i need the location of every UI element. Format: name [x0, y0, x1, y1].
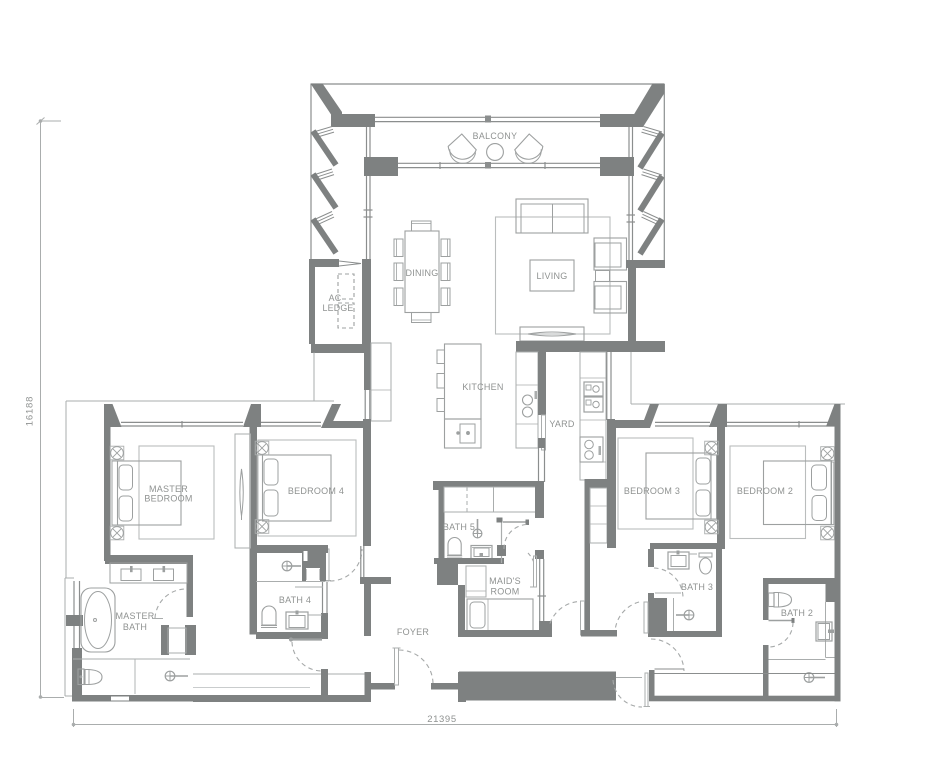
svg-text:MASTER: MASTER	[149, 484, 188, 494]
svg-text:LEDGE: LEDGE	[322, 303, 353, 313]
svg-text:FOYER: FOYER	[397, 627, 430, 637]
svg-text:AC: AC	[329, 293, 342, 303]
svg-text:MAID'S: MAID'S	[489, 576, 521, 586]
svg-text:BATH: BATH	[123, 622, 147, 632]
svg-text:16188: 16188	[25, 396, 36, 426]
svg-text:BATH 2: BATH 2	[781, 608, 813, 618]
svg-text:YARD: YARD	[549, 419, 575, 429]
svg-text:DINING: DINING	[406, 268, 439, 278]
svg-text:BALCONY: BALCONY	[473, 131, 518, 141]
svg-text:21395: 21395	[427, 714, 456, 725]
svg-text:BEDROOM 3: BEDROOM 3	[624, 486, 680, 496]
svg-text:BEDROOM: BEDROOM	[144, 494, 192, 504]
svg-text:BEDROOM 2: BEDROOM 2	[737, 486, 793, 496]
svg-text:KITCHEN: KITCHEN	[462, 382, 503, 392]
svg-text:BATH 5: BATH 5	[443, 522, 475, 532]
svg-text:BATH 4: BATH 4	[279, 595, 311, 605]
svg-text:ROOM: ROOM	[491, 587, 520, 597]
svg-text:BATH 3: BATH 3	[681, 582, 713, 592]
svg-text:BEDROOM 4: BEDROOM 4	[288, 486, 344, 496]
svg-text:MASTER: MASTER	[115, 611, 154, 621]
svg-text:LIVING: LIVING	[536, 271, 567, 281]
